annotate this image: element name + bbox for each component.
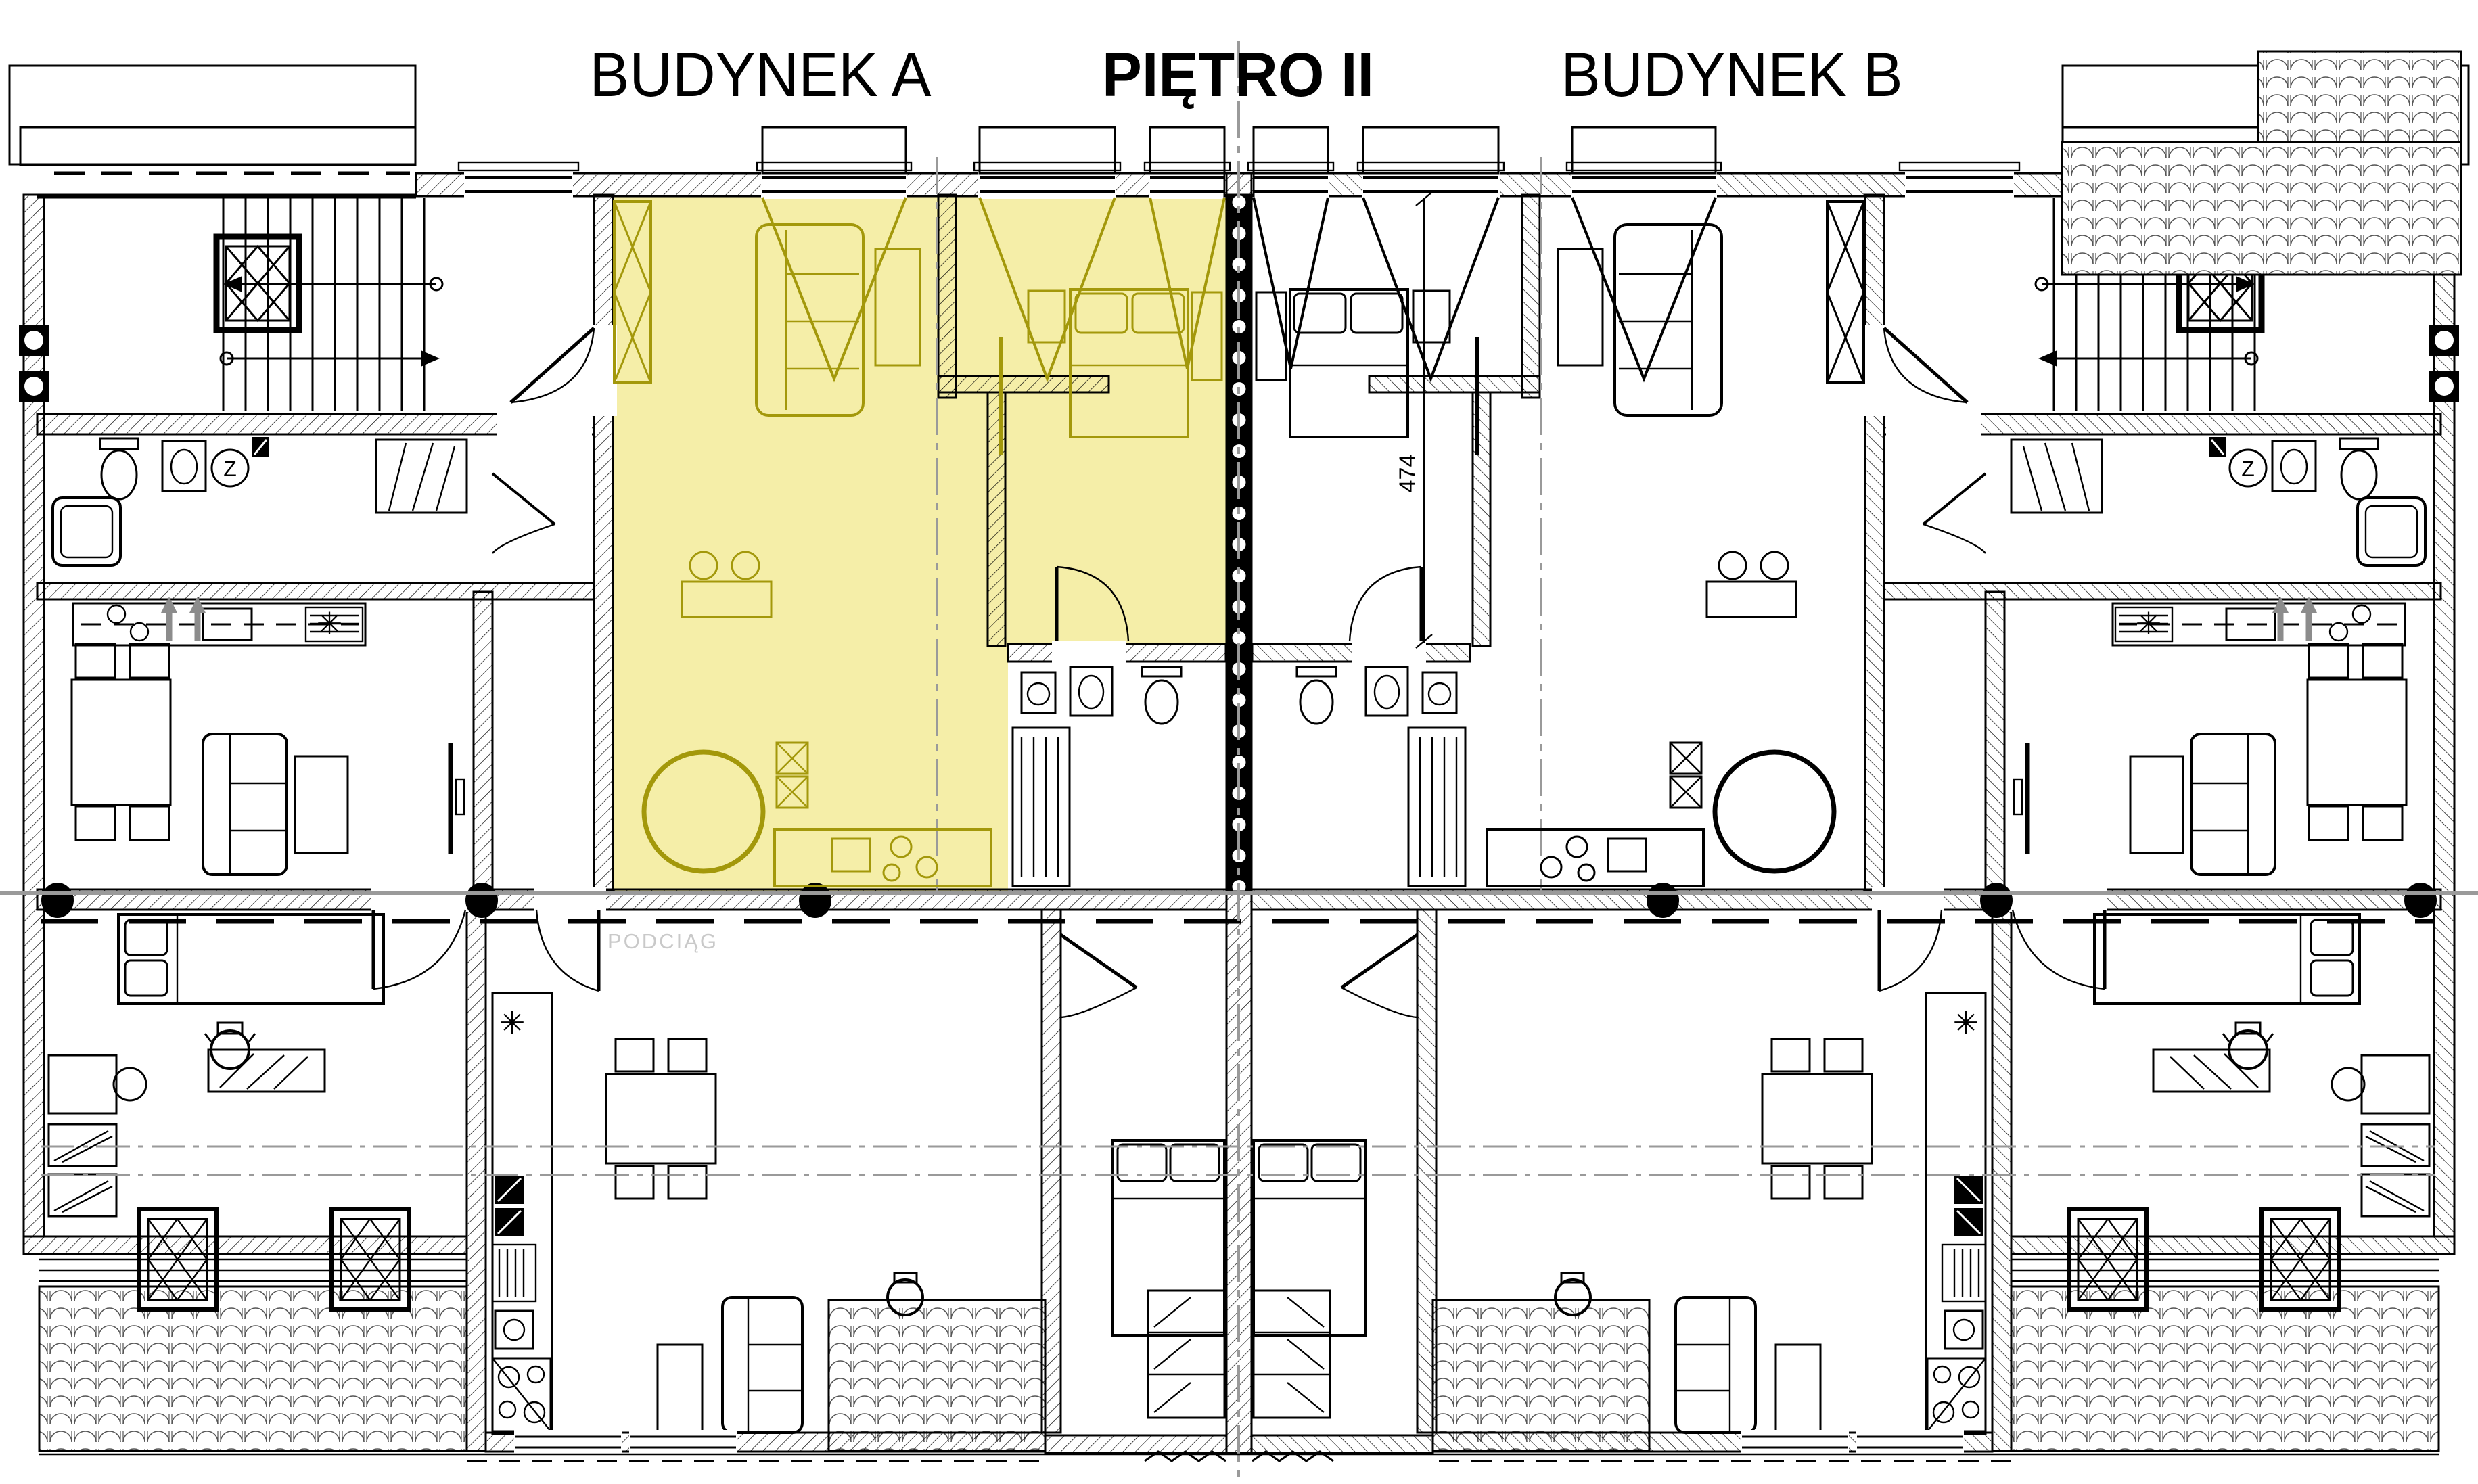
title-building-a: BUDYNEK A	[590, 41, 932, 110]
boiler-symbol: ✳	[2136, 606, 2162, 641]
z-fixture-symbol: Z	[223, 457, 237, 481]
title-floor: PIĘTRO II	[1102, 41, 1374, 110]
boiler-symbol: ✳	[1953, 1005, 1979, 1040]
z-fixture-symbol: Z	[2241, 457, 2255, 481]
dimension-474: 474	[1395, 192, 1432, 648]
dimension-label: 474	[1395, 455, 1421, 493]
plan-titles: BUDYNEK A PIĘTRO II BUDYNEK B	[590, 41, 1903, 110]
apartment-b2-furniture	[1254, 198, 1864, 886]
boiler-symbol: ✳	[499, 1005, 526, 1040]
boiler-symbol: ✳	[317, 606, 343, 641]
roof-tiles-top-right	[2062, 51, 2461, 275]
title-building-b: BUDYNEK B	[1561, 41, 1903, 110]
floor-plan-canvas: 474 PODCIĄG ✳ ✳ ✳ ✳ Z Z BUDYNEK A PIĘTRO…	[0, 0, 2478, 1484]
floor-plan-page: 474 PODCIĄG ✳ ✳ ✳ ✳ Z Z BUDYNEK A PIĘTRO…	[0, 0, 2478, 1484]
beam-label: PODCIĄG	[607, 929, 718, 953]
